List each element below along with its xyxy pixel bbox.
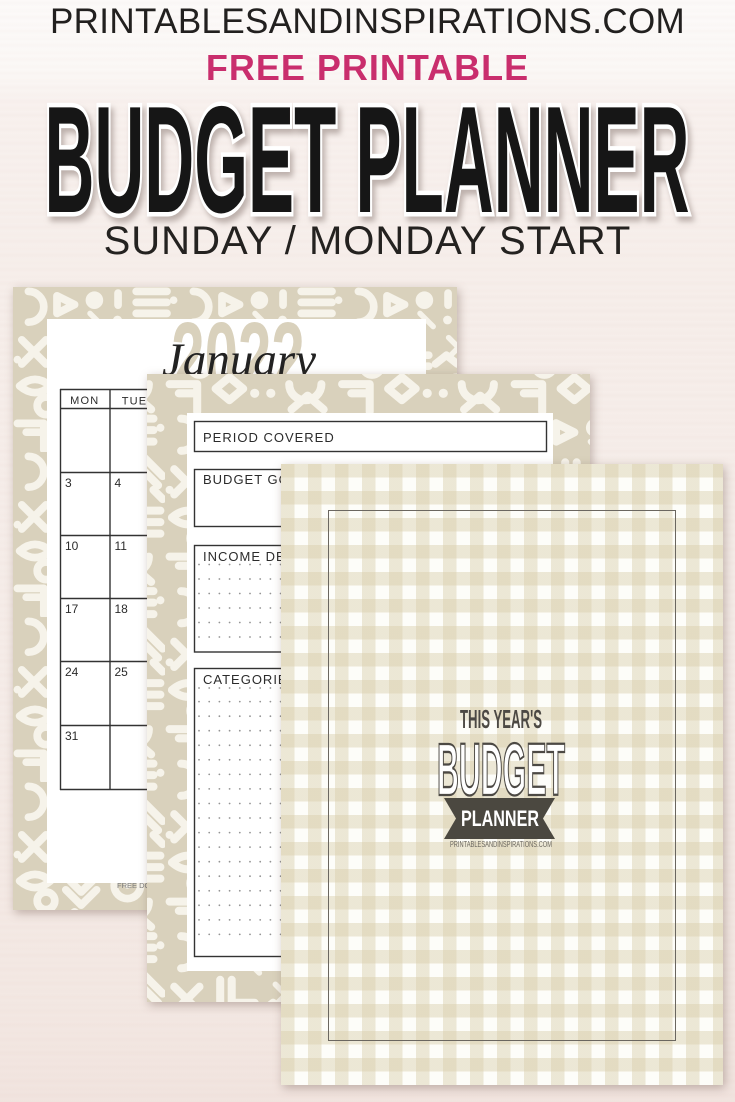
svg-text:TUE: TUE — [122, 396, 148, 408]
svg-text:18: 18 — [115, 602, 129, 616]
svg-text:4: 4 — [115, 476, 122, 490]
svg-text:24: 24 — [65, 665, 79, 679]
svg-text:MON: MON — [70, 395, 99, 407]
svg-text:10: 10 — [65, 539, 79, 553]
svg-text:PERIOD COVERED: PERIOD COVERED — [203, 430, 335, 445]
svg-text:PLANNER: PLANNER — [461, 806, 539, 831]
svg-text:31: 31 — [65, 729, 79, 743]
svg-text:BUDGET PLANNER: BUDGET PLANNER — [45, 84, 690, 234]
svg-text:25: 25 — [115, 665, 129, 679]
svg-text:PRINTABLESANDINSPIRATIONS.COM: PRINTABLESANDINSPIRATIONS.COM — [450, 840, 552, 849]
svg-text:11: 11 — [115, 539, 128, 553]
svg-text:3: 3 — [65, 476, 72, 490]
svg-text:17: 17 — [65, 602, 79, 616]
